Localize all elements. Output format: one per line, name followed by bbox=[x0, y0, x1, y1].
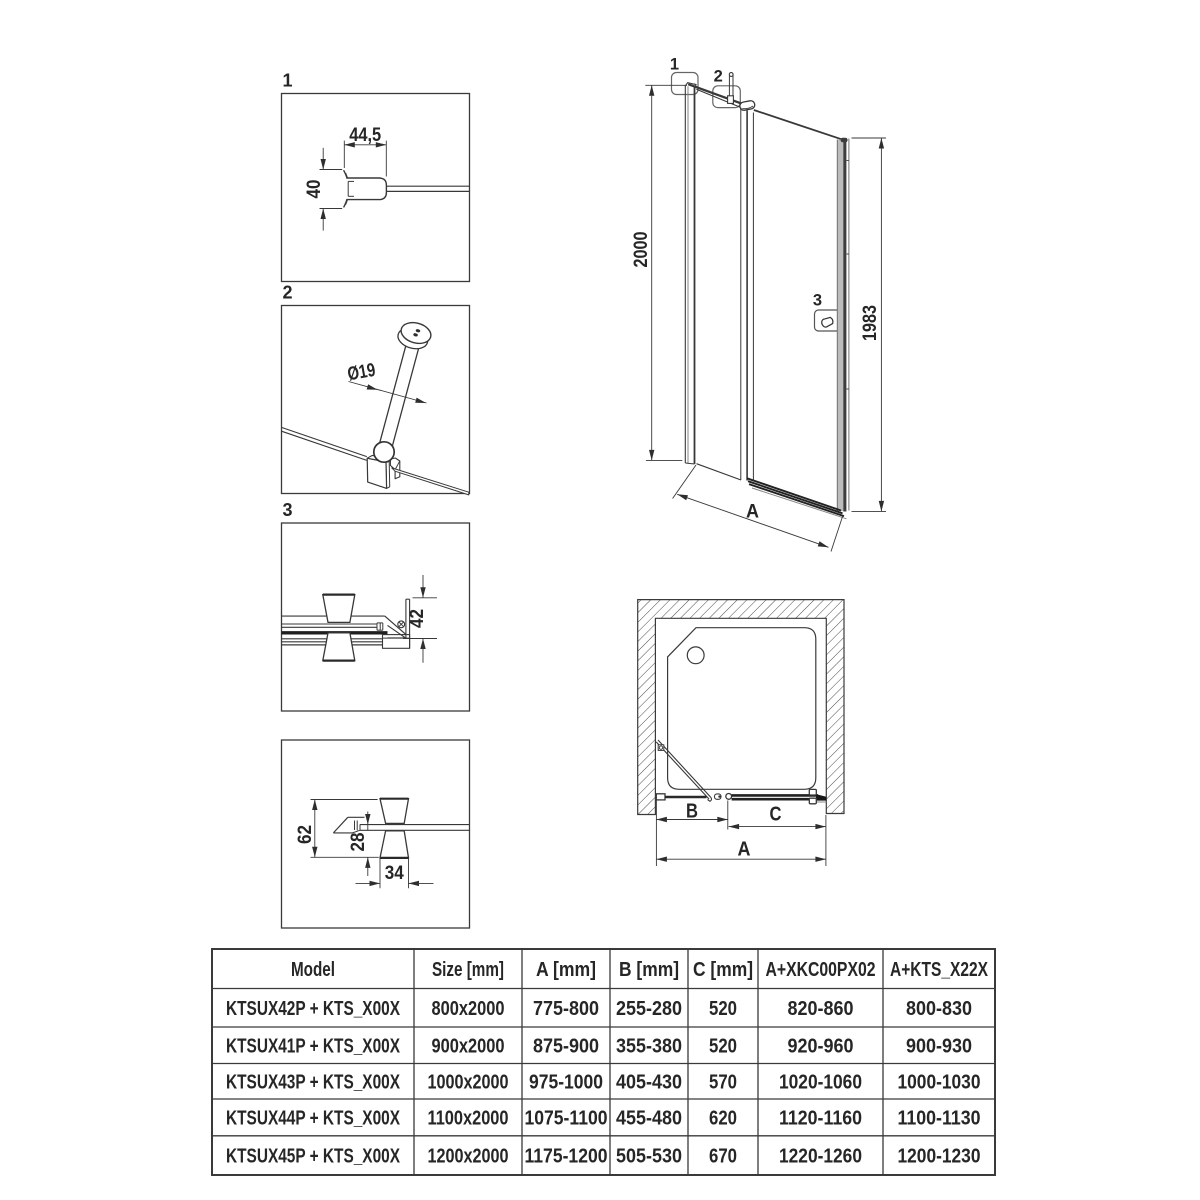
svg-text:A [mm]: A [mm] bbox=[536, 959, 596, 981]
svg-text:KTSUX43P + KTS_X00X: KTSUX43P + KTS_X00X bbox=[226, 1072, 401, 1094]
svg-text:255-280: 255-280 bbox=[616, 998, 682, 1020]
svg-text:A: A bbox=[746, 502, 759, 523]
svg-text:KTSUX41P + KTS_X00X: KTSUX41P + KTS_X00X bbox=[226, 1036, 401, 1058]
svg-text:Model: Model bbox=[291, 959, 335, 981]
svg-text:KTSUX44P + KTS_X00X: KTSUX44P + KTS_X00X bbox=[226, 1108, 401, 1130]
svg-text:405-430: 405-430 bbox=[616, 1072, 682, 1094]
svg-text:3: 3 bbox=[813, 292, 822, 310]
svg-text:620: 620 bbox=[709, 1108, 737, 1130]
svg-text:B [mm]: B [mm] bbox=[619, 959, 679, 981]
svg-text:1175-1200: 1175-1200 bbox=[525, 1146, 608, 1168]
svg-text:1000-1030: 1000-1030 bbox=[898, 1072, 981, 1094]
svg-text:570: 570 bbox=[709, 1072, 737, 1094]
svg-text:1020-1060: 1020-1060 bbox=[779, 1072, 862, 1094]
svg-text:1: 1 bbox=[670, 56, 679, 74]
svg-text:2: 2 bbox=[714, 68, 723, 86]
svg-text:2000: 2000 bbox=[631, 232, 652, 268]
svg-text:28: 28 bbox=[348, 833, 369, 852]
svg-text:820-860: 820-860 bbox=[788, 998, 854, 1020]
svg-text:505-530: 505-530 bbox=[616, 1146, 682, 1168]
svg-text:1100x2000: 1100x2000 bbox=[428, 1108, 509, 1130]
svg-text:455-480: 455-480 bbox=[616, 1108, 682, 1130]
svg-text:1: 1 bbox=[282, 71, 292, 91]
svg-text:Size [mm]: Size [mm] bbox=[432, 959, 504, 981]
svg-text:520: 520 bbox=[709, 998, 737, 1020]
svg-text:355-380: 355-380 bbox=[616, 1036, 682, 1058]
svg-text:40: 40 bbox=[304, 180, 325, 199]
svg-text:920-960: 920-960 bbox=[788, 1036, 854, 1058]
svg-text:A+XKC00PX02: A+XKC00PX02 bbox=[766, 959, 876, 981]
svg-text:2: 2 bbox=[282, 283, 292, 303]
svg-text:900-930: 900-930 bbox=[906, 1036, 972, 1058]
svg-text:875-900: 875-900 bbox=[533, 1036, 599, 1058]
svg-text:3: 3 bbox=[282, 500, 292, 520]
svg-text:1120-1160: 1120-1160 bbox=[779, 1108, 862, 1130]
svg-text:775-800: 775-800 bbox=[533, 998, 599, 1020]
svg-text:B: B bbox=[686, 801, 698, 823]
svg-text:1075-1100: 1075-1100 bbox=[525, 1108, 608, 1130]
svg-text:C [mm]: C [mm] bbox=[693, 959, 753, 981]
svg-text:A+KTS_X22X: A+KTS_X22X bbox=[890, 959, 989, 981]
svg-text:42: 42 bbox=[407, 609, 428, 628]
svg-text:520: 520 bbox=[709, 1036, 737, 1058]
svg-text:1983: 1983 bbox=[860, 305, 881, 341]
svg-text:KTSUX45P + KTS_X00X: KTSUX45P + KTS_X00X bbox=[226, 1146, 401, 1168]
svg-text:1200-1230: 1200-1230 bbox=[898, 1146, 981, 1168]
svg-text:62: 62 bbox=[295, 825, 316, 844]
svg-text:800x2000: 800x2000 bbox=[432, 998, 505, 1020]
svg-text:A: A bbox=[738, 839, 751, 861]
svg-text:1000x2000: 1000x2000 bbox=[428, 1072, 509, 1094]
svg-text:1100-1130: 1100-1130 bbox=[898, 1108, 981, 1130]
svg-text:1200x2000: 1200x2000 bbox=[428, 1146, 509, 1168]
svg-text:KTSUX42P + KTS_X00X: KTSUX42P + KTS_X00X bbox=[226, 998, 401, 1020]
svg-text:34: 34 bbox=[385, 863, 404, 884]
svg-text:800-830: 800-830 bbox=[906, 998, 972, 1020]
svg-text:975-1000: 975-1000 bbox=[529, 1072, 603, 1094]
svg-text:C: C bbox=[770, 804, 782, 826]
svg-text:44,5: 44,5 bbox=[349, 125, 381, 146]
svg-text:900x2000: 900x2000 bbox=[432, 1036, 505, 1058]
svg-text:670: 670 bbox=[709, 1146, 737, 1168]
svg-text:1220-1260: 1220-1260 bbox=[779, 1146, 862, 1168]
